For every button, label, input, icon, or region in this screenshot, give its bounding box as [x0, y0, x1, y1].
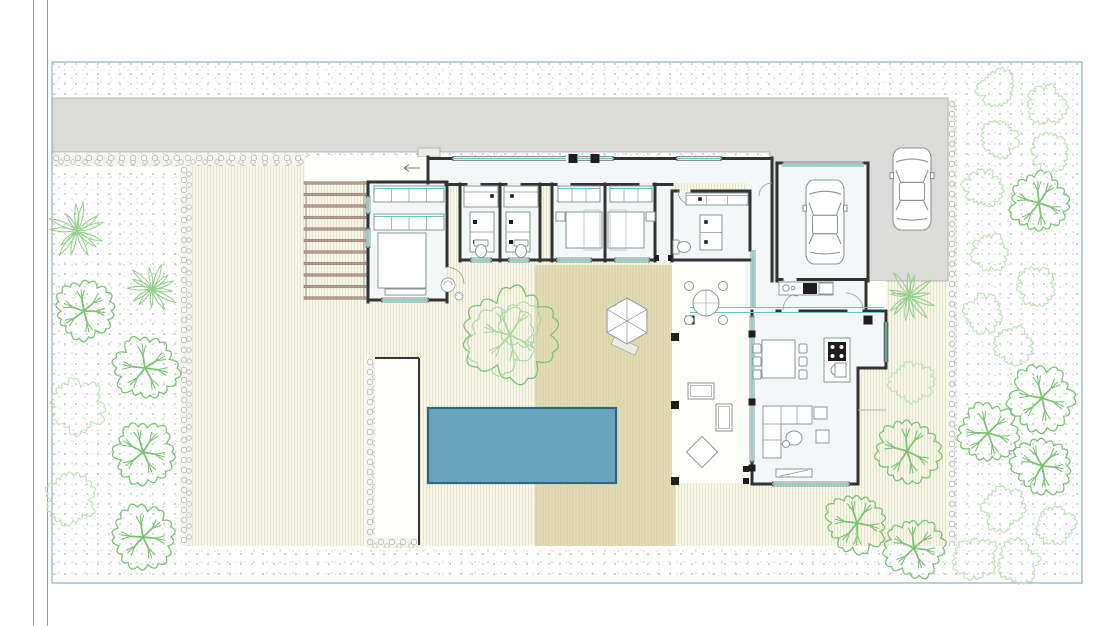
- bush-icon: [50, 378, 105, 437]
- lounge-chair: [716, 404, 732, 431]
- car-icon: [890, 148, 934, 230]
- wall-post: [569, 154, 578, 163]
- bush-icon: [1036, 506, 1077, 545]
- chair: [799, 357, 807, 366]
- parasol-icon: [607, 298, 647, 355]
- toilet-icon: [474, 240, 488, 258]
- lounge-chair: [688, 383, 714, 399]
- glass-mullion: [749, 465, 756, 472]
- palm-plant-icon: [50, 203, 103, 255]
- car-mirror: [890, 173, 894, 179]
- door-jamb: [668, 255, 672, 261]
- pergola-slat: [304, 251, 366, 254]
- fixture-dot: [698, 197, 702, 201]
- palm-plant-icon: [127, 265, 175, 309]
- fixture-dot: [704, 240, 708, 244]
- tree-icon: [112, 337, 181, 398]
- room-floor: [428, 160, 772, 183]
- pool-gravel-strip: [375, 358, 419, 538]
- bush-icon: [961, 169, 1004, 207]
- tree-icon: [957, 402, 1020, 461]
- wardrobe: [374, 186, 444, 202]
- large-tree-icon: [463, 285, 558, 385]
- kitchen-counter: [779, 282, 833, 295]
- car-mirror: [844, 205, 848, 211]
- fixture-dot: [510, 194, 514, 198]
- porch-pillar: [864, 316, 873, 325]
- chair: [685, 316, 694, 325]
- deco-plant-icon: [455, 292, 463, 300]
- site-plan-canvas: [0, 0, 1110, 626]
- wardrobe: [374, 214, 444, 230]
- tree-icon: [875, 420, 943, 484]
- terrace-column: [671, 333, 679, 341]
- tv-bench: [776, 469, 812, 477]
- fixture-dot: [490, 194, 494, 198]
- bush-icon: [997, 538, 1041, 584]
- car-mirror: [931, 173, 935, 179]
- bush-icon: [1027, 83, 1068, 124]
- bush-icon: [993, 325, 1033, 366]
- swimming-pool: [428, 408, 616, 483]
- bush-icon: [981, 121, 1019, 159]
- chair: [685, 282, 694, 291]
- stove-icon: [828, 342, 846, 361]
- door-jamb: [743, 478, 749, 484]
- toilet-icon: [514, 240, 528, 258]
- car-mirror: [803, 205, 807, 211]
- window: [676, 157, 722, 161]
- chair: [719, 316, 728, 325]
- tree-icon: [1009, 170, 1069, 231]
- bench: [385, 289, 426, 295]
- oven-icon: [803, 283, 817, 294]
- pergola-slat: [304, 182, 366, 185]
- bush-icon: [1016, 267, 1055, 307]
- appliance-icon: [819, 283, 833, 294]
- toilet-icon: [673, 240, 691, 254]
- door-jamb: [655, 255, 659, 261]
- side-table: [816, 430, 829, 443]
- wardrobe: [686, 193, 748, 205]
- bush-icon: [975, 68, 1014, 107]
- tree-icon: [112, 423, 175, 486]
- side-table: [814, 407, 827, 419]
- tree-icon: [1009, 438, 1070, 495]
- wardrobe: [558, 186, 600, 202]
- glass-mullion: [749, 399, 756, 406]
- chair: [753, 357, 761, 366]
- nightstand: [646, 212, 655, 221]
- nightstand: [556, 212, 565, 221]
- vanity: [700, 215, 722, 250]
- chair: [719, 282, 728, 291]
- bush-icon: [1031, 132, 1068, 173]
- porch-floor: [866, 281, 886, 311]
- vanity: [504, 186, 538, 207]
- pergola-slat: [304, 228, 366, 231]
- sink-icon: [783, 285, 789, 291]
- pergola-slat: [304, 193, 366, 196]
- dining-table: [753, 340, 807, 379]
- terrace-column: [671, 401, 679, 409]
- bush-icon: [962, 293, 1003, 335]
- side-table: [835, 363, 846, 377]
- chair: [753, 344, 761, 353]
- pergola-slat: [304, 262, 366, 265]
- terrace-column: [671, 477, 679, 485]
- bush-icon: [970, 233, 1009, 271]
- tree-icon: [112, 504, 175, 570]
- pergola-slat: [304, 216, 366, 219]
- fixture-dot: [704, 220, 708, 224]
- plan-drawing: [0, 0, 1110, 626]
- room-floor: [655, 184, 672, 262]
- bush-icon: [952, 538, 997, 580]
- window: [452, 157, 566, 161]
- glass-mullion: [749, 331, 756, 338]
- car-icon: [803, 180, 847, 264]
- wall-post: [591, 154, 600, 163]
- sink-icon: [791, 286, 795, 290]
- chair: [753, 370, 761, 379]
- chair: [799, 344, 807, 353]
- tree-icon: [883, 520, 946, 578]
- chair: [799, 370, 807, 379]
- deco-plant-icon: [441, 278, 455, 292]
- bush-icon: [980, 486, 1026, 533]
- wardrobe: [610, 186, 652, 202]
- pergola-slat: [304, 285, 366, 288]
- pergola-slat: [304, 274, 366, 277]
- tree-icon: [1006, 365, 1076, 434]
- door-jamb: [743, 466, 749, 472]
- pergola-slat: [304, 297, 366, 300]
- bush-icon: [887, 361, 935, 403]
- pergola-slat: [304, 239, 366, 242]
- bush-icon: [45, 472, 95, 526]
- pergola-slat: [304, 205, 366, 208]
- tree-icon: [56, 280, 115, 342]
- floor-lamp-icon: [783, 441, 790, 448]
- tree-icon: [825, 496, 885, 555]
- pergola: [304, 181, 366, 300]
- walkway-floor: [305, 157, 428, 183]
